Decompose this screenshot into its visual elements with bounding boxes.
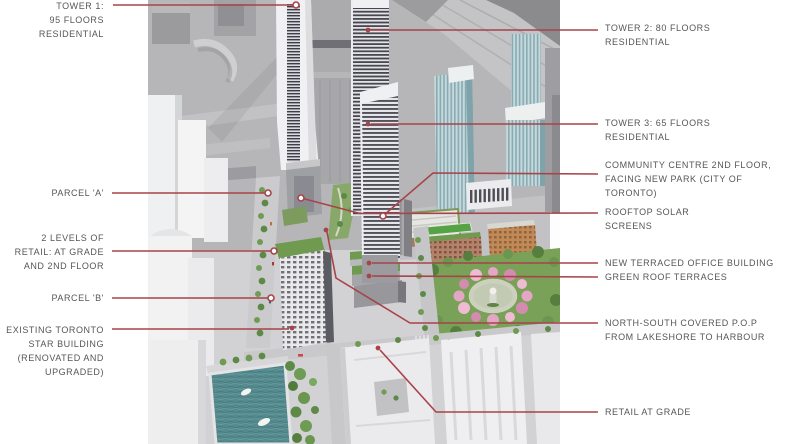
label-tower-3: TOWER 3: 65 FLOORS RESIDENTIAL xyxy=(605,116,787,144)
label-parcel-a: PARCEL 'A' xyxy=(0,186,104,200)
label-tower-1: TOWER 1: 95 FLOORS RESIDENTIAL xyxy=(0,0,104,41)
label-rooftop-solar: ROOFTOP SOLAR SCREENS xyxy=(605,205,787,233)
water-basin xyxy=(206,353,291,444)
glass-tower-east-2 xyxy=(505,34,546,186)
colonnade-structure xyxy=(466,179,512,210)
label-pop-walkway: NORTH-SOUTH COVERED P.O.P FROM LAKESHORE… xyxy=(605,316,787,344)
label-parcel-b: PARCEL 'B' xyxy=(0,291,104,305)
annotated-site-plan: TOWER 1: 95 FLOORS RESIDENTIAL PARCEL 'A… xyxy=(0,0,788,444)
site-rendering-image xyxy=(148,0,560,444)
rendering-svg xyxy=(148,0,560,444)
label-tower-2: TOWER 2: 80 FLOORS RESIDENTIAL xyxy=(605,21,787,49)
label-retail-grade: RETAIL AT GRADE xyxy=(605,405,787,419)
label-community-centre: COMMUNITY CENTRE 2ND FLOOR, FACING NEW P… xyxy=(605,158,787,200)
tower-3-building xyxy=(360,82,400,283)
east-grey-buildings xyxy=(545,48,560,213)
toronto-star-building xyxy=(275,237,334,350)
label-office-building: NEW TERRACED OFFICE BUILDING GREEN ROOF … xyxy=(605,256,787,284)
label-star-building: EXISTING TORONTO STAR BUILDING (RENOVATE… xyxy=(0,323,104,379)
label-retail-levels: 2 LEVELS OF RETAIL: AT GRADE AND 2ND FLO… xyxy=(0,231,104,273)
